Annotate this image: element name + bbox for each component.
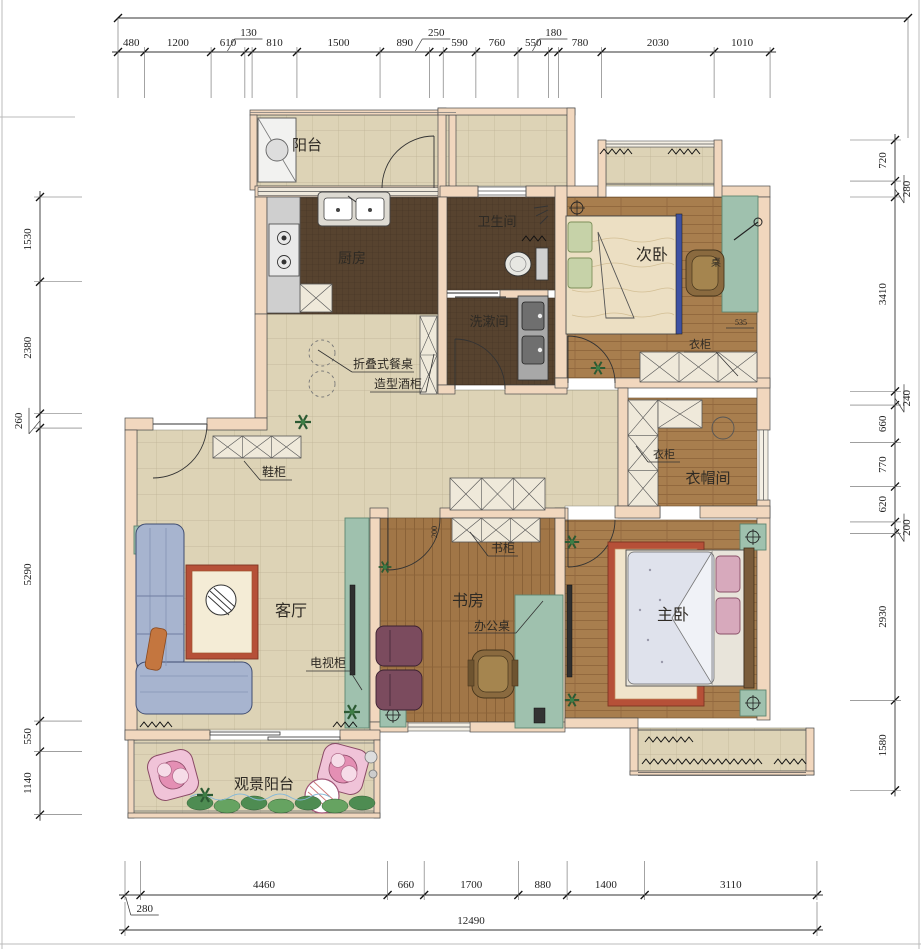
pillow [568,258,592,288]
wall-segment [128,813,380,818]
wall-segment [374,740,380,818]
label-master: 主卧 [657,605,689,624]
dimension-text: 12490 [457,915,485,927]
dimension-text: 760 [489,37,506,49]
wall-segment [125,730,210,740]
dimension-text: 2930 [877,605,889,628]
dimension-text: 250 [428,27,445,39]
living-slider-leaf [268,737,340,740]
headboard [744,548,754,688]
pillow [568,222,592,252]
label-folding-table: 折叠式餐桌 [353,356,413,371]
dimension-text: 1200 [167,37,190,49]
dimension-text: 1140 [22,772,34,794]
dimension-text: 780 [572,37,589,49]
wall-segment [125,418,153,430]
x-cabinet [450,478,545,510]
wall-segment [125,430,137,740]
label-dim-200: 200 [430,526,439,538]
dimension-text: 550 [22,728,34,745]
dimension-text: 880 [534,879,551,891]
label-view-balcony: 观景阳台 [234,775,294,793]
phone [534,708,545,723]
dimension-text: 3410 [877,283,889,306]
wall-segment [440,186,478,197]
dimension-text: 1700 [460,879,483,891]
dimension-text: 620 [877,495,889,512]
guest-chair [376,626,422,666]
label-bathroom: 卫生间 [477,215,516,230]
desk-bedroom2 [722,196,758,312]
pillow [716,598,740,634]
label-washroom: 洗漱间 [469,315,508,330]
dimension-text: 280 [901,180,913,197]
guest-chair [376,670,422,710]
plant-hedge [349,796,375,810]
dimension-text: 610 [220,37,237,49]
plant-hedge [322,799,348,813]
office-chair-seat [478,656,508,692]
dimension-text: 590 [451,37,468,49]
floorplan-drawing: 4801200610130810150089025059076055018078… [0,0,921,949]
label-balcony: 阳台 [292,136,322,154]
wall-segment [255,314,267,418]
dimension-text: 200 [901,519,913,536]
dimension-text: 5290 [22,563,34,586]
wall-segment [806,728,814,775]
dimension-text: 810 [266,37,283,49]
wall-segment [128,740,134,818]
toilet-tank [536,248,548,280]
wall-segment [207,418,267,430]
tv-cabinet [345,518,369,728]
dimension-text: 770 [877,456,889,473]
wall-segment [438,108,446,197]
wall-segment [250,115,257,190]
wall-segment [370,508,388,518]
label-bookcase: 书柜 [491,541,515,555]
chair-arm [468,660,474,686]
dimension-text: 720 [877,152,889,169]
dimension-text: 240 [901,389,913,406]
wall-segment [618,388,628,508]
dimension-text: 660 [877,415,889,432]
wall-segment [714,140,722,197]
wall-segment [630,728,638,775]
dimension-text: 1010 [731,37,754,49]
label-cloakroom: 衣帽间 [685,469,730,487]
dimension-text: 180 [545,27,562,39]
label-wardrobe-cloakroom: 衣柜 [653,447,675,461]
label-wardrobe-bedroom2: 衣柜 [689,337,711,351]
x-cabinet [452,518,540,542]
floorplan-page: 4801200610130810150089025059076055018078… [0,0,921,949]
dimension-text: 550 [525,37,542,49]
master-bed [626,548,754,688]
pillow [716,556,740,592]
plant-hedge [268,799,294,813]
x-cabinet [420,316,437,394]
dimension-text: 2030 [647,37,670,49]
plant-hedge [187,796,213,810]
dimension-text: 3110 [720,879,742,891]
label-desk-note: 桌 [711,256,721,269]
dimension-text: 1580 [877,734,889,757]
label-office-desk: 办公桌 [474,618,510,633]
dimension-text: 660 [398,879,415,891]
wall-segment [700,506,770,518]
label-wine-cabinet: 造型酒柜 [374,377,422,391]
dimension-text: 260 [13,412,25,429]
wall-segment [598,140,606,197]
label-tv-cabinet: 电视柜 [310,655,346,670]
dimension-text: 2380 [22,336,34,359]
x-cabinet [640,352,757,382]
wall-segment [615,506,660,518]
label-dim-535: 535 [735,318,747,327]
wall-segment [757,197,770,386]
bedroom2-bed [566,214,682,334]
wall-segment [255,197,267,314]
flower-pot [369,770,377,778]
label-bedroom2: 次卧 [636,245,668,264]
dimension-text: 1530 [22,228,34,251]
label-shoe-cabinet: 鞋柜 [262,464,286,479]
floor-entry [446,115,567,186]
dimension-text: 4460 [253,879,276,891]
living-slider-leaf [210,732,280,735]
wall-segment [555,186,567,378]
toilet-bowl [505,252,531,276]
dimension-text: 1500 [327,37,350,49]
dimension-text: 890 [396,37,413,49]
plant-hedge [214,799,240,813]
wall-segment [438,197,447,385]
wall-segment [567,108,575,197]
wall-segment [716,186,770,197]
flower-pot [365,751,377,763]
dimension-text: 1400 [595,879,618,891]
label-study: 书房 [452,591,484,610]
wall-segment [438,108,575,115]
master-tv-panel [567,585,572,677]
wall-segment [565,718,638,728]
wall-segment [757,386,770,430]
chair-arm [512,660,518,686]
x-cabinet [658,400,702,428]
wall-segment [340,730,380,740]
dimension-text: 480 [123,37,140,49]
tv-panel [350,585,355,675]
dimension-text: 280 [137,903,154,915]
label-kitchen: 厨房 [338,251,366,267]
dimension-text: 130 [240,27,257,39]
label-living: 客厅 [275,601,307,620]
wall-segment [630,771,814,775]
x-cabinet [300,284,332,312]
x-cabinet [213,436,301,458]
wall-segment [438,385,455,394]
wall-segment [555,378,568,388]
floor-bay-bedroom2 [606,147,714,186]
plant-hedge [241,796,267,810]
wall-segment [449,115,456,190]
